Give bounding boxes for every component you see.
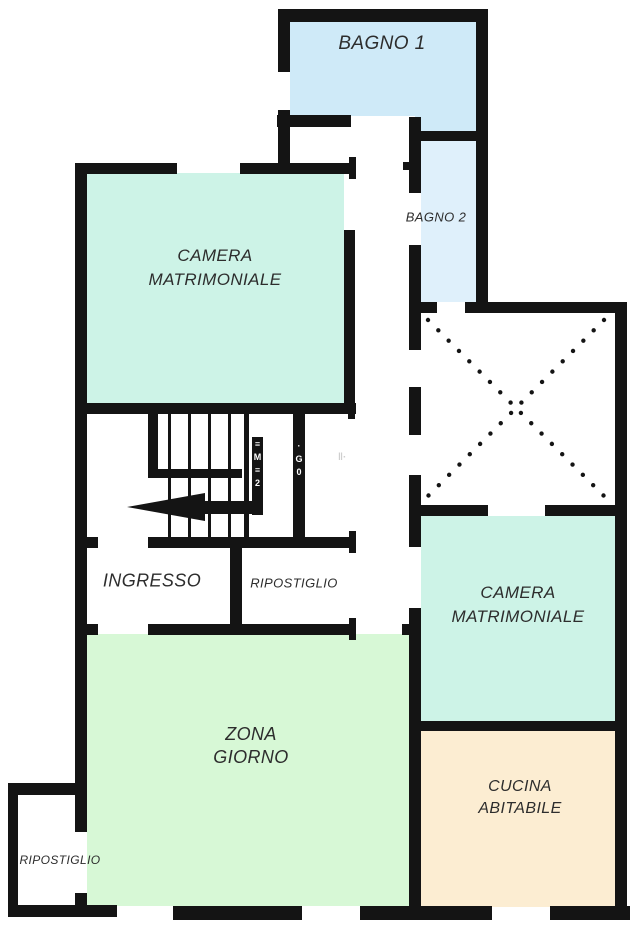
wall-col-seg-a (409, 117, 421, 193)
wall-right-top (476, 9, 488, 313)
wall-bagno2-bottom-stub (415, 302, 437, 313)
wall-tick-ingresso-north (349, 531, 356, 553)
watermark-fragment-faint: ‖· (338, 452, 346, 463)
stair-tread (228, 413, 231, 537)
wall-tick-camera1-bottom (348, 398, 355, 419)
wall-ripostiglio-left (8, 783, 18, 917)
wall-ingresso-divider (230, 548, 242, 625)
stair-tread (208, 413, 211, 537)
label-cucina: CUCINA ABITABILE (478, 776, 561, 820)
floor-plan: ≡M ≡2 ·G 0 ‖· BAGNO 1 BAGNO 2 CAMERA MAT… (0, 0, 640, 946)
watermark-fragment: ·G 0 (293, 440, 305, 479)
label-bagno1: BAGNO 1 (338, 33, 425, 55)
wall-nub-lower (87, 624, 98, 635)
wall-bagno1-bagno2-divider (415, 131, 477, 141)
wall-col-seg-e (409, 608, 421, 920)
wall-ingresso-south (148, 624, 353, 635)
wall-void-top (465, 302, 627, 313)
label-camera1: CAMERA MATRIMONIALE (149, 244, 282, 292)
dotted-cross (424, 316, 608, 500)
stair-left-bar (148, 412, 158, 472)
label-camera2: CAMERA MATRIMONIALE (452, 581, 585, 629)
wall-col-seg-c (409, 387, 421, 435)
wall-bagno1-left-upper (278, 9, 290, 72)
label-ripostiglio-small: RIPOSTIGLIO (19, 853, 100, 867)
wall-camera1-top-left (75, 163, 177, 174)
stair-arrow-icon (127, 493, 205, 521)
label-bagno2: BAGNO 2 (406, 210, 467, 225)
void-area (424, 316, 608, 500)
stair-tread-edge (244, 413, 249, 537)
label-ingresso: INGRESSO (103, 571, 201, 592)
stair-wall-bar (293, 413, 305, 547)
label-ripostiglio-hall: RIPOSTIGLIO (250, 576, 337, 591)
wall-camera1-right (344, 230, 355, 413)
wall-ingresso-north (148, 537, 353, 548)
wall-camera2-cucina-divider (415, 721, 621, 731)
label-zona-giorno: ZONA GIORNO (213, 723, 288, 769)
wall-bagno1-top (278, 9, 488, 22)
wall-tick-ingresso-south (349, 618, 356, 640)
wall-bottom-seg3 (550, 906, 630, 920)
wall-tick-camera2-door (402, 624, 410, 635)
wall-bottom-seg1 (173, 906, 302, 920)
wall-left-main (75, 163, 87, 832)
room-fill-zona-giorno (87, 634, 409, 906)
watermark-fragment: ≡M ≡2 (252, 438, 263, 490)
wall-void-bottom-left (409, 505, 488, 516)
wall-bottom-seg2 (360, 906, 492, 920)
wall-camera1-top-right (240, 163, 355, 174)
wall-tick-bagno2 (403, 162, 421, 170)
wall-col-seg-b (409, 245, 421, 350)
room-fill-bagno1-lower (415, 115, 476, 131)
wall-below-bagno1 (277, 115, 351, 127)
wall-camera1-bottom (75, 403, 356, 414)
wall-void-bottom-right (545, 505, 627, 516)
wall-nub-upper (87, 537, 98, 548)
wall-ripostiglio-top (8, 783, 83, 795)
wall-ripostiglio-bottom (8, 905, 117, 917)
wall-right-main (615, 302, 627, 920)
stair-arrow-shaft (203, 501, 263, 514)
wall-tick-camera1-top (349, 157, 356, 179)
